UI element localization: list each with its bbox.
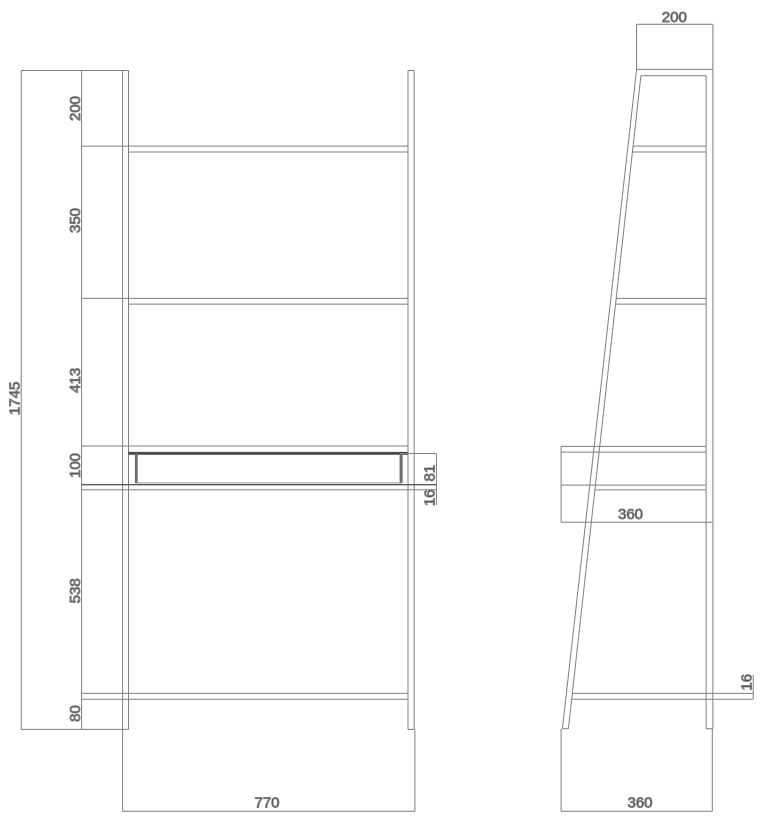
svg-text:16: 16: [422, 489, 439, 506]
svg-text:80: 80: [67, 705, 84, 722]
svg-text:770: 770: [254, 795, 279, 812]
svg-text:16: 16: [739, 674, 756, 691]
svg-text:1745: 1745: [7, 382, 24, 415]
svg-text:100: 100: [67, 453, 84, 478]
svg-text:360: 360: [627, 795, 652, 812]
svg-text:81: 81: [422, 465, 439, 482]
svg-text:350: 350: [67, 208, 84, 233]
svg-text:200: 200: [662, 9, 687, 26]
svg-text:538: 538: [67, 578, 84, 603]
svg-text:200: 200: [67, 96, 84, 121]
svg-text:360: 360: [618, 506, 643, 523]
svg-text:413: 413: [67, 368, 84, 393]
